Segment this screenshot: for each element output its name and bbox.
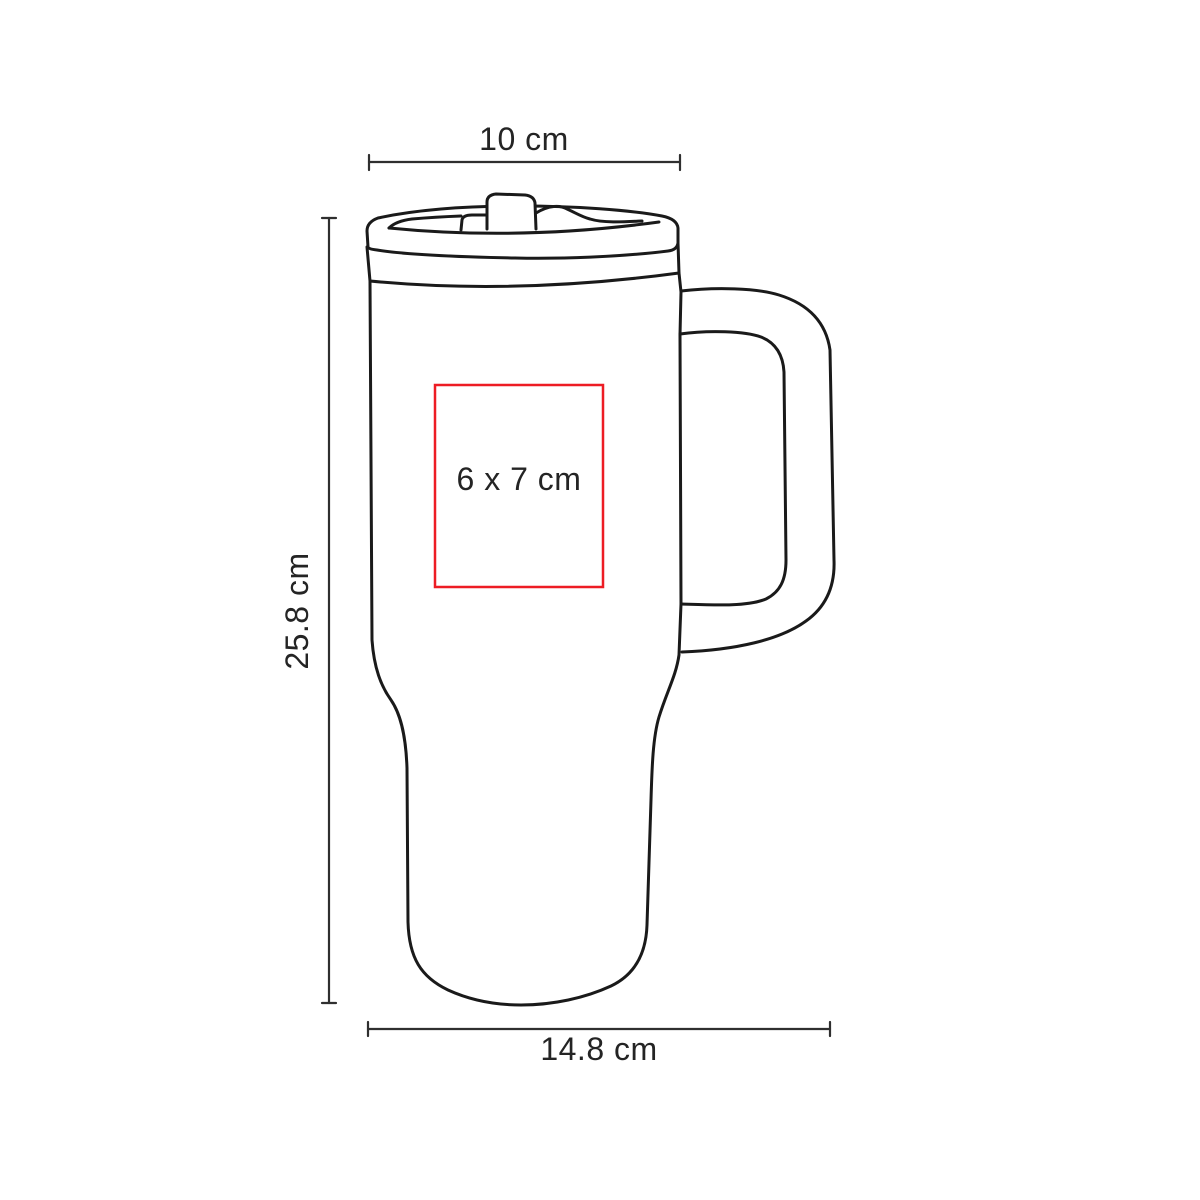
height-label: 25.8 cm [279,552,315,669]
mug-neck-left-edge [367,247,370,281]
mug-outline-group [367,194,834,1005]
mug-neck-line [370,273,679,286]
dimension-height: 25.8 cm [279,218,336,1003]
product-dimension-diagram: 6 x 7 cm 10 cm 25.8 cm 14.8 cm [0,0,1200,1200]
imprint-area-group: 6 x 7 cm [435,385,603,587]
dimension-top-width: 10 cm [369,121,680,170]
handle-inner-outline [680,332,786,605]
dimension-base-width: 14.8 cm [368,1022,830,1067]
mug-neck-right-edge [678,243,679,273]
handle-outer-outline [681,289,834,652]
base-width-label: 14.8 cm [540,1031,657,1067]
imprint-area-label: 6 x 7 cm [457,461,582,497]
mug-line-drawing: 6 x 7 cm 10 cm 25.8 cm 14.8 cm [0,0,1200,1200]
mug-body-outline [370,273,681,1005]
top-width-label: 10 cm [479,121,569,157]
lid-tab [487,194,536,229]
